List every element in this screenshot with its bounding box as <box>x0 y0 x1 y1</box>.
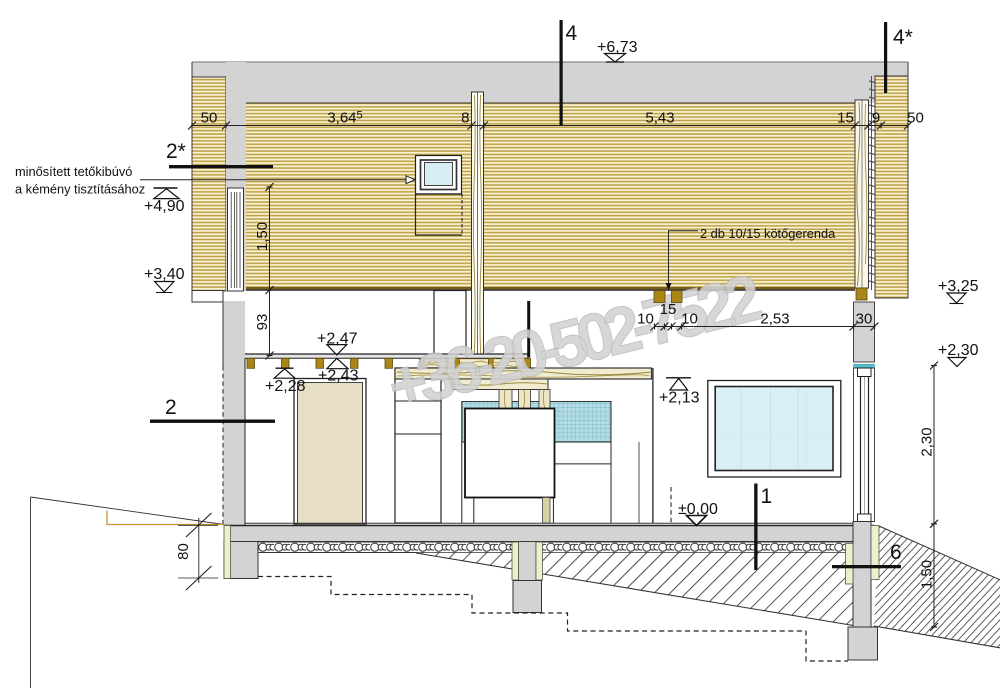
svg-text:2*: 2* <box>166 140 186 163</box>
svg-text:2,53: 2,53 <box>760 311 789 328</box>
svg-text:2: 2 <box>165 396 177 419</box>
svg-text:+4,90: +4,90 <box>144 198 185 215</box>
svg-text:minősített tetőkibúvó: minősített tetőkibúvó <box>15 164 132 179</box>
svg-text:1: 1 <box>761 485 773 508</box>
svg-text:1,50: 1,50 <box>254 222 271 251</box>
svg-text:+3,40: +3,40 <box>144 266 185 283</box>
svg-text:4: 4 <box>566 22 578 45</box>
svg-text:2 db 10/15 kötőgerenda: 2 db 10/15 kötőgerenda <box>700 226 836 241</box>
svg-text:80: 80 <box>175 543 192 560</box>
svg-text:50: 50 <box>201 110 218 127</box>
svg-text:15: 15 <box>837 110 854 127</box>
svg-text:5,43: 5,43 <box>645 110 674 127</box>
svg-text:+2,28: +2,28 <box>265 378 306 395</box>
svg-text:9: 9 <box>872 110 880 127</box>
svg-text:10: 10 <box>637 311 654 328</box>
svg-text:a kémény tisztításához: a kémény tisztításához <box>15 182 145 197</box>
svg-text:6: 6 <box>890 541 902 564</box>
svg-text:2,30: 2,30 <box>919 427 936 456</box>
svg-text:93: 93 <box>254 314 271 331</box>
svg-text:+2,43: +2,43 <box>318 368 359 385</box>
svg-text:+2,30: +2,30 <box>938 342 979 359</box>
svg-text:+2,13: +2,13 <box>659 390 700 407</box>
svg-text:30: 30 <box>856 311 873 328</box>
svg-text:15: 15 <box>660 301 677 318</box>
svg-text:10: 10 <box>681 311 698 328</box>
svg-text:4*: 4* <box>893 26 913 49</box>
svg-text:1,50: 1,50 <box>919 560 936 589</box>
svg-text:50: 50 <box>907 110 924 127</box>
svg-text:8: 8 <box>461 110 469 127</box>
